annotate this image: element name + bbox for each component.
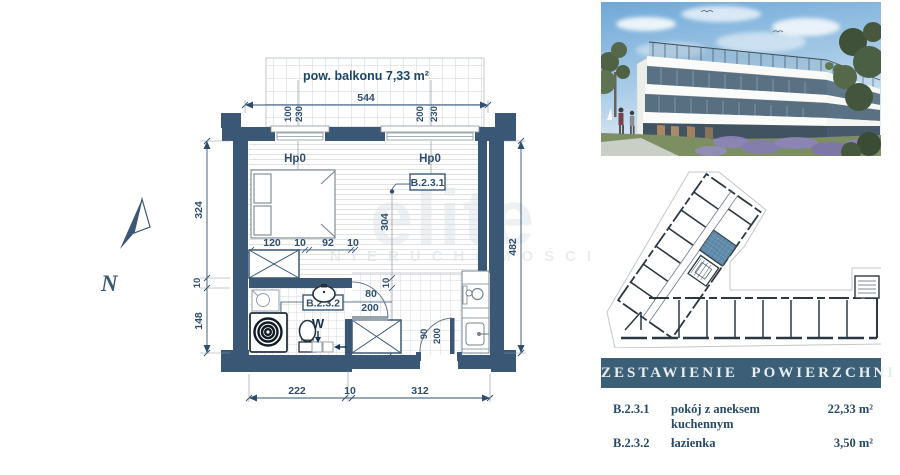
water-mark-1: W (312, 316, 325, 331)
building-render-photo (601, 2, 881, 156)
window-right (381, 126, 479, 141)
dim-total-width: 544 (357, 92, 375, 104)
dim-entry-door-h: 200 (432, 328, 443, 344)
dim-left-3: 148 (193, 312, 205, 330)
dim-arrow (204, 141, 211, 149)
washer (252, 290, 279, 311)
dim-win-right-1: 200 (415, 106, 426, 122)
sill-height-right: Hp0 (419, 153, 441, 165)
entry-door-leaf (450, 318, 455, 354)
wardrobe (249, 250, 299, 278)
dim-win-left-2: 230 (294, 106, 305, 122)
dim-bottom-2: 10 (344, 385, 356, 397)
right-stairwell (855, 276, 879, 298)
dim-bottom-3: 312 (411, 385, 429, 397)
wall-joint (487, 141, 489, 273)
dim-room-depth: 304 (379, 213, 391, 231)
dim-win-left-1: 100 (283, 106, 294, 122)
dim-arrow (204, 345, 211, 353)
row-area: 22,33 m² (803, 402, 881, 432)
area-summary: ZESTAWIENIE POWIERZCHNI B.2.3.1 pokój z … (601, 358, 881, 455)
dim-bed-1: 120 (263, 237, 281, 249)
dim-arrow (518, 345, 525, 353)
dim-left-1: 324 (193, 201, 205, 219)
dim-arrow (482, 395, 490, 402)
summary-title: ZESTAWIENIE POWIERZCHNI (601, 358, 881, 388)
dim-bottom (246, 371, 493, 402)
dim-bath-door-w: 80 (365, 288, 377, 300)
connection-box (312, 342, 322, 352)
table-row: B.2.3.1 pokój z aneksem kuchennym 22,33 … (601, 402, 881, 432)
apartment-offer-sheet: elite NIERUCHOMOŚCI N pow. balkonu 7,3 (0, 0, 900, 475)
building-location-plan (601, 170, 881, 348)
dim-left-2: 10 (192, 278, 203, 289)
hall-wardrobe (352, 320, 401, 353)
bath-door-leaf (352, 316, 388, 321)
floor-plan: N pow. balkonu 7,33 m² (85, 40, 535, 415)
window-left (271, 126, 329, 141)
connection-box (323, 342, 333, 352)
table-row: B.2.3.2 łazienka 3,50 m² (601, 436, 881, 451)
building (637, 42, 829, 142)
balcony-area-label: pow. balkonu 7,33 m² (303, 69, 429, 83)
dim-entry-door-w: 90 (419, 329, 430, 340)
row-code: B.2.3.1 (601, 402, 671, 432)
shower (250, 313, 287, 352)
sill-height-left: Hp0 (284, 153, 306, 165)
north-arrow: N (100, 199, 150, 296)
bed (251, 170, 335, 238)
dim-arrow (245, 102, 253, 109)
row-code: B.2.3.2 (601, 436, 671, 451)
dim-hall-1: 10 (381, 278, 392, 289)
dim-bed-2: 10 (294, 237, 306, 249)
dim-win-right-2: 230 (429, 106, 440, 122)
dim-bath-door-h: 200 (361, 302, 379, 314)
leader-dot (390, 189, 394, 193)
north-label: N (100, 271, 119, 296)
row-area: 3,50 m² (803, 436, 881, 451)
kitchen-counter (462, 271, 489, 353)
row-name: pokój z aneksem kuchennym (671, 402, 803, 432)
dim-arrow (249, 395, 257, 402)
dim-bottom-1: 222 (288, 385, 306, 397)
dim-arrow (518, 141, 525, 149)
dim-bed-4: 10 (347, 237, 359, 249)
row-name: łazienka (671, 436, 803, 451)
dim-right-total: 482 (507, 238, 519, 256)
room-label: B.2.3.1 (411, 177, 445, 189)
dim-bed-3: 92 (322, 237, 334, 249)
